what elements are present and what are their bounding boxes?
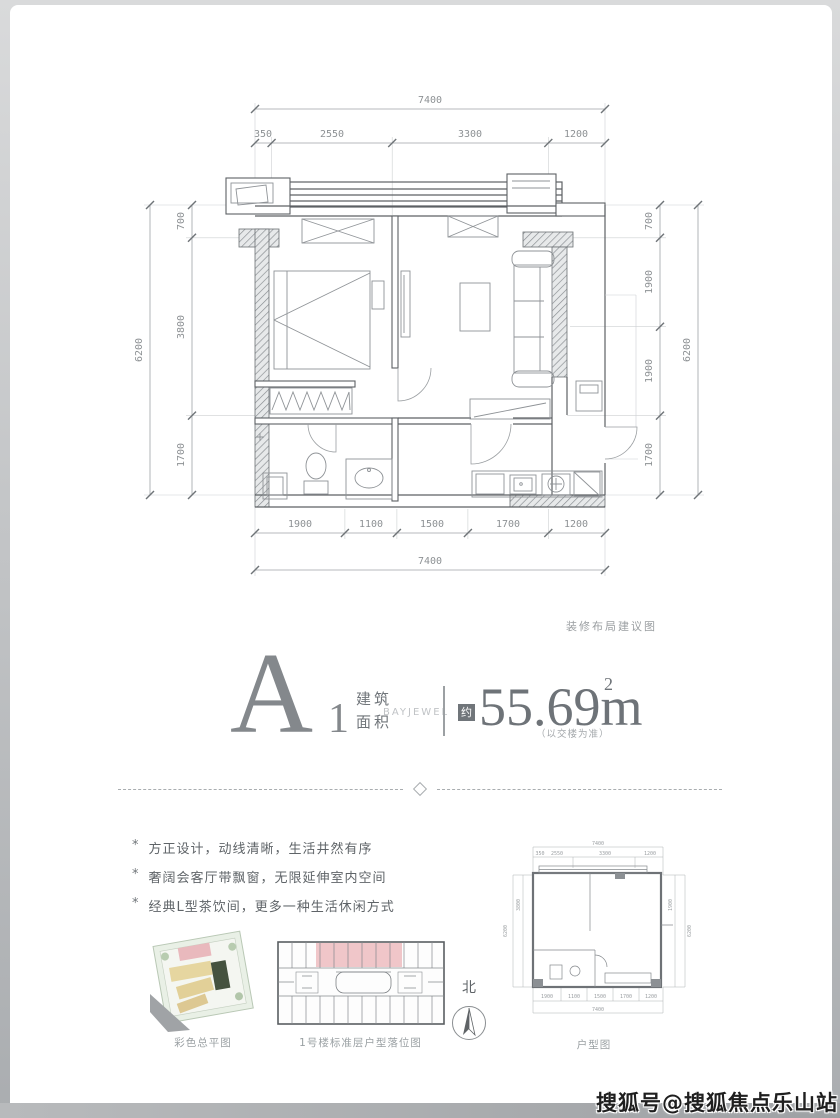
svg-text:1700: 1700 — [496, 519, 520, 530]
floor-distribution-caption: 1号楼标准层户型落位图 — [273, 1035, 448, 1050]
svg-text:1700: 1700 — [620, 994, 632, 1000]
kitchen-door — [471, 424, 511, 464]
svg-text:3300: 3300 — [599, 851, 611, 857]
divider-diamond-icon — [413, 782, 427, 796]
bedroom-wall — [392, 216, 398, 368]
feature-text: 奢阔会客厅带飘窗，无限延伸室内空间 — [149, 867, 387, 886]
svg-text:1900: 1900 — [668, 899, 674, 911]
svg-text:7400: 7400 — [592, 1007, 604, 1013]
sofa — [512, 251, 554, 387]
svg-text:1100: 1100 — [359, 519, 383, 530]
svg-text:1500: 1500 — [420, 519, 444, 530]
watermark: 搜狐号@搜狐焦点乐山站 — [596, 1087, 838, 1117]
svg-text:350: 350 — [254, 129, 272, 140]
unit-title-block: A 1 建筑 面积 BAYJEWEL 约 55.69m 2 （以交楼为准） — [230, 650, 660, 760]
svg-text:1900: 1900 — [288, 519, 312, 530]
north-arrow: 北 — [448, 978, 490, 1050]
svg-text:1200: 1200 — [644, 851, 656, 857]
unit-plan-thumbnail: 7400 350 2550 3300 1200 6200 3800 6200 1… — [495, 835, 695, 1030]
svg-text:7400: 7400 — [418, 556, 442, 567]
feature-text: 经典L型茶饮间，更多一种生活休闲方式 — [149, 896, 395, 915]
washing-machine — [263, 473, 287, 499]
divider-dash-left — [118, 789, 403, 790]
feature-text: 方正设计，动线清晰，生活井然有序 — [149, 838, 373, 857]
dimension-lines — [146, 105, 702, 574]
svg-text:3300: 3300 — [458, 129, 482, 140]
toilet — [304, 453, 328, 494]
svg-text:700: 700 — [644, 212, 655, 230]
bedroom-door — [398, 368, 431, 401]
svg-text:1200: 1200 — [645, 994, 657, 1000]
divider-dash-right — [437, 789, 722, 790]
svg-text:6200: 6200 — [687, 925, 693, 937]
svg-text:1200: 1200 — [564, 129, 588, 140]
svg-text:1200: 1200 — [564, 519, 588, 530]
brand-name: BAYJEWEL — [383, 707, 449, 718]
walls — [226, 174, 638, 507]
kitchen-counter — [472, 471, 602, 497]
feature-item: * 经典L型茶饮间，更多一种生活休闲方式 — [132, 896, 395, 915]
entry-cabinet — [576, 381, 602, 411]
north-needle-icon — [463, 1008, 469, 1035]
washbasin — [346, 459, 392, 499]
unit-name: A — [230, 636, 313, 751]
main-floor-plan: 7400 350 2550 3300 1200 6200 700 3800 17… — [120, 85, 720, 645]
feature-item: * 方正设计，动线清晰，生活井然有序 — [132, 838, 395, 857]
site-plan-thumbnail — [150, 932, 260, 1032]
unit-plan-caption: 户型图 — [544, 1037, 644, 1052]
bullet-star-icon: * — [132, 867, 140, 882]
svg-text:3800: 3800 — [176, 315, 187, 339]
bathroom-door — [308, 424, 336, 452]
bullet-star-icon: * — [132, 838, 140, 853]
svg-text:700: 700 — [176, 212, 187, 230]
svg-text:2550: 2550 — [320, 129, 344, 140]
doors — [308, 368, 637, 464]
feature-list: * 方正设计，动线清晰，生活井然有序 * 奢阔会客厅带飘窗，无限延伸室内空间 *… — [132, 838, 395, 925]
svg-text:2550: 2550 — [551, 851, 563, 857]
bullet-star-icon: * — [132, 896, 140, 911]
approx-badge: 约 — [458, 704, 475, 721]
mini-walls — [533, 866, 673, 987]
tv-panel — [401, 271, 410, 337]
svg-text:350: 350 — [535, 851, 544, 857]
dimension-labels: 7400 350 2550 3300 1200 6200 700 3800 17… — [134, 95, 693, 567]
entry-door — [605, 427, 637, 459]
svg-text:6200: 6200 — [682, 338, 693, 362]
cabinet-crossed-1 — [302, 219, 374, 243]
dimension-extension-lines — [144, 103, 704, 576]
site-plan-caption: 彩色总平图 — [148, 1035, 258, 1050]
plan-note: 装修布局建议图 — [566, 618, 657, 634]
floor-distribution-thumbnail — [276, 938, 446, 1028]
svg-text:7400: 7400 — [418, 95, 442, 106]
title-divider — [443, 686, 445, 736]
svg-text:3800: 3800 — [516, 899, 522, 911]
svg-text:6200: 6200 — [134, 338, 145, 362]
svg-text:1700: 1700 — [644, 443, 655, 467]
bar-counter — [470, 399, 550, 419]
feature-item: * 奢阔会客厅带飘窗，无限延伸室内空间 — [132, 867, 395, 886]
svg-text:1100: 1100 — [568, 994, 580, 1000]
svg-text:1900: 1900 — [541, 994, 553, 1000]
svg-text:1700: 1700 — [176, 443, 187, 467]
svg-text:6200: 6200 — [503, 925, 509, 937]
north-label: 北 — [462, 980, 476, 996]
area-superscript: 2 — [604, 674, 613, 695]
section-divider — [118, 784, 722, 794]
wardrobe — [270, 388, 352, 414]
bed — [274, 271, 384, 369]
cabinet-crossed-2 — [448, 216, 498, 237]
svg-text:1900: 1900 — [644, 359, 655, 383]
highlighted-units — [316, 943, 402, 967]
svg-text:1500: 1500 — [594, 994, 606, 1000]
coffee-table — [460, 283, 490, 331]
area-note: （以交楼为准） — [536, 726, 610, 740]
svg-text:7400: 7400 — [592, 841, 604, 847]
svg-text:1900: 1900 — [644, 270, 655, 294]
unit-number: 1 — [328, 698, 349, 740]
furniture — [256, 216, 602, 499]
